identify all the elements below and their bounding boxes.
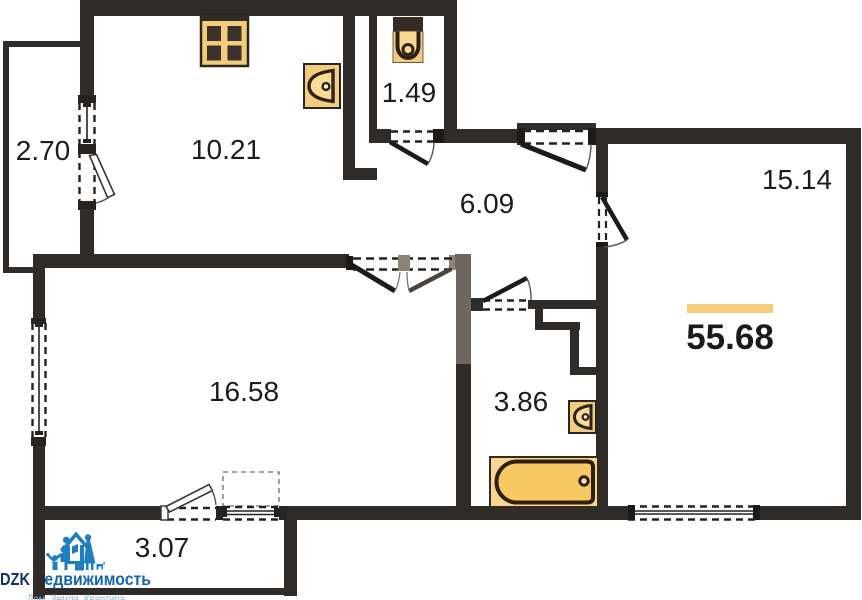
svg-text:10.21: 10.21 [191,134,261,165]
svg-text:6.09: 6.09 [460,188,515,219]
svg-text:DZK: DZK [0,569,30,589]
svg-text:16.58: 16.58 [209,376,279,407]
svg-text:Недвижимость: Недвижимость [33,569,151,589]
svg-text:15.14: 15.14 [762,164,832,195]
svg-text:Дом, Земля, Квартира: Дом, Земля, Квартира [27,592,125,600]
svg-text:1.49: 1.49 [382,77,437,108]
svg-text:55.68: 55.68 [686,318,774,357]
svg-text:3.86: 3.86 [494,386,549,417]
svg-text:3.07: 3.07 [135,532,190,563]
svg-text:2.70: 2.70 [16,135,71,166]
